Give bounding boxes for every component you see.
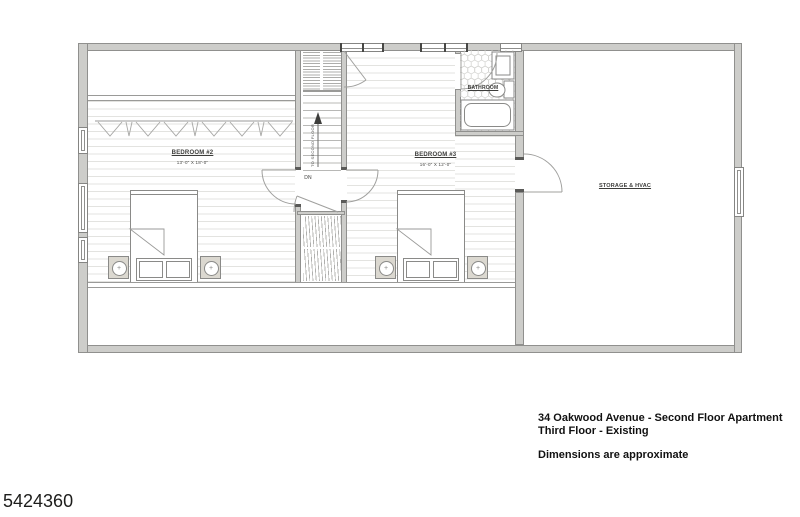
nightstand: + bbox=[108, 256, 129, 279]
closet-shelf-line bbox=[303, 247, 341, 249]
pillow bbox=[139, 261, 163, 278]
bedroom3-dims: 16'-0" X 12'-0" bbox=[373, 162, 498, 167]
storage-divider-wall-lower bbox=[515, 192, 524, 345]
nightstand: + bbox=[200, 256, 221, 279]
bed-footboard bbox=[397, 190, 465, 195]
window-bathroom bbox=[500, 43, 522, 52]
nightstand: + bbox=[375, 256, 396, 279]
outer-wall-top bbox=[78, 43, 742, 51]
nightstand: + bbox=[467, 256, 488, 279]
lamp-icon: + bbox=[379, 261, 394, 276]
window-mullion bbox=[444, 43, 446, 52]
window-left-1 bbox=[78, 127, 88, 154]
door-storage bbox=[524, 154, 562, 192]
window-sash bbox=[81, 240, 85, 260]
window-top-2 bbox=[420, 43, 468, 52]
jamb-mark bbox=[295, 204, 301, 207]
lamp-icon: + bbox=[471, 261, 486, 276]
corner-number: 5424360 bbox=[3, 491, 73, 512]
bathroom-wall-left bbox=[455, 89, 461, 136]
jamb-mark bbox=[515, 157, 524, 160]
bed-footboard bbox=[130, 190, 198, 195]
outer-wall-bottom bbox=[78, 345, 742, 353]
window-left-3 bbox=[78, 237, 88, 263]
window-right-1 bbox=[734, 167, 744, 217]
window-top-1 bbox=[340, 43, 384, 52]
stair-wall-left-upper bbox=[295, 50, 301, 170]
bathtub bbox=[461, 100, 514, 130]
jamb-mark bbox=[341, 200, 347, 203]
annotation-line-2: Third Floor - Existing bbox=[538, 425, 649, 437]
sink-vanity bbox=[492, 52, 514, 79]
attic-wall-line bbox=[303, 90, 341, 92]
jamb-mark bbox=[295, 167, 301, 170]
pillow bbox=[433, 261, 457, 278]
bedroom3-label: BEDROOM #3 bbox=[373, 152, 498, 158]
jamb-mark bbox=[515, 189, 524, 192]
window-mullion bbox=[420, 43, 422, 52]
pillow bbox=[406, 261, 430, 278]
stair-wall-right-upper bbox=[341, 50, 347, 170]
bedroom2-label: BEDROOM #2 bbox=[130, 150, 255, 156]
floor-plan-page: + + + + bbox=[0, 0, 800, 517]
stair-treads bbox=[303, 95, 341, 171]
bathroom-wall-bottom bbox=[455, 131, 524, 136]
window-sash bbox=[81, 186, 85, 230]
annotation-line-1: 34 Oakwood Avenue - Second Floor Apartme… bbox=[538, 412, 782, 424]
stair-direction-label: TO SECOND FLOOR bbox=[310, 121, 315, 167]
lamp-icon: + bbox=[112, 261, 127, 276]
annotation-note: Dimensions are approximate bbox=[538, 449, 688, 461]
window-sash bbox=[81, 130, 85, 151]
bedroom2-dims: 13'-0" X 18'-0" bbox=[130, 160, 255, 165]
pillow bbox=[166, 261, 190, 278]
jamb-mark bbox=[341, 167, 347, 170]
stair-wall-left-lower bbox=[295, 206, 301, 284]
window-left-2 bbox=[78, 183, 88, 233]
lamp-icon: + bbox=[204, 261, 219, 276]
window-mullion bbox=[382, 43, 384, 52]
window-glass-line bbox=[501, 48, 521, 49]
window-mullion bbox=[466, 43, 468, 52]
window-mullion bbox=[340, 43, 342, 52]
storage-label: STORAGE & HVAC bbox=[565, 183, 685, 189]
stair-dn-label: DN bbox=[298, 175, 318, 181]
bathroom-label: BATHROOM bbox=[461, 85, 505, 91]
knee-wall-bedroom2 bbox=[88, 95, 295, 101]
closet-front-wall bbox=[297, 211, 345, 215]
attic-hatch-divider bbox=[320, 52, 323, 90]
storage-divider-wall-upper bbox=[515, 50, 524, 160]
window-mullion bbox=[362, 43, 364, 52]
bedrooms-rear-wall bbox=[88, 282, 515, 288]
door-bathroom bbox=[461, 53, 497, 89]
window-sash bbox=[737, 170, 741, 214]
